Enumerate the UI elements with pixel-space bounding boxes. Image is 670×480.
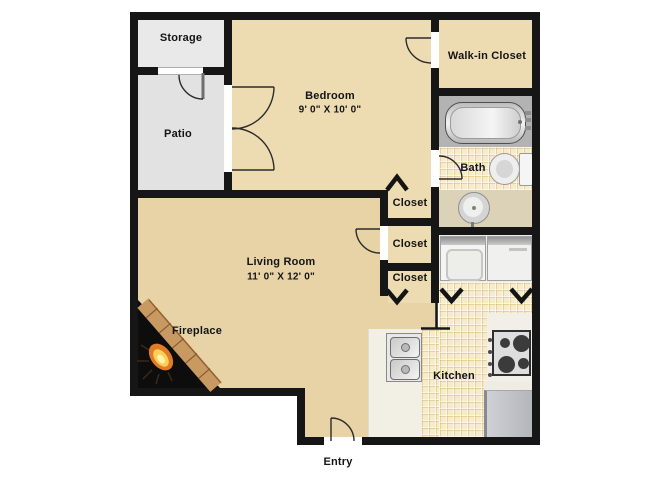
- wall-vanity-laundry: [439, 227, 540, 235]
- door-opening-closet: [380, 226, 388, 260]
- stove-knob: [488, 350, 492, 354]
- kitchen-sink-basin-bottom: [390, 359, 420, 380]
- wall-bedroom-walkin: [431, 20, 439, 32]
- bathtub-icon: [445, 102, 526, 144]
- bathtub-faucet: [525, 126, 531, 130]
- door-opening-storage: [158, 67, 203, 75]
- wall-bedroom-living: [138, 190, 388, 198]
- stove-knob: [488, 362, 492, 366]
- wall-exterior-left: [130, 12, 138, 396]
- stove-burner: [500, 338, 510, 348]
- floor-plan: Storage Patio Bedroom 9' 0" X 10' 0" Wal…: [0, 0, 670, 480]
- wall-closet-right: [431, 187, 439, 303]
- toilet-bowl: [496, 160, 513, 178]
- bath-label: Bath: [460, 162, 485, 174]
- bathtub-drain: [518, 120, 522, 124]
- stove-burner: [498, 356, 515, 373]
- washer-door: [446, 249, 483, 281]
- door-opening-entry: [324, 437, 362, 445]
- kitchen-label: Kitchen: [433, 370, 475, 382]
- patio-label: Patio: [164, 128, 192, 140]
- fireplace-label: Fireplace: [172, 325, 222, 337]
- bathtub-basin: [450, 107, 521, 139]
- toilet-tank: [519, 153, 533, 186]
- refrigerator-icon: [484, 390, 532, 437]
- wall-bedroom-bath: [431, 68, 439, 150]
- living-room-dimensions: 11' 0" X 12' 0": [247, 272, 315, 283]
- wall-walkin-bottom: [431, 88, 540, 96]
- washer-icon: [440, 236, 486, 281]
- kitchen-tile-floor-west: [421, 329, 439, 437]
- stove-burner: [518, 358, 529, 369]
- kitchen-sink-drain: [401, 365, 410, 374]
- washer-control-panel: [441, 237, 485, 245]
- door-opening-french: [224, 85, 232, 172]
- entry-label: Entry: [323, 456, 352, 468]
- dryer-control-panel: [488, 237, 531, 245]
- closet-middle-label: Closet: [393, 238, 428, 250]
- living-room-floor: [138, 198, 368, 388]
- vanity-sink-icon: [458, 192, 490, 224]
- dryer-icon: [487, 236, 532, 281]
- bedroom-label: Bedroom: [305, 90, 355, 102]
- closet-bottom-label: Closet: [393, 272, 428, 284]
- kitchen-sink-drain: [401, 343, 410, 352]
- door-opening-bath: [431, 150, 439, 187]
- door-opening-walkin: [431, 32, 439, 68]
- closet-top-label: Closet: [393, 197, 428, 209]
- toilet-icon: [489, 153, 520, 185]
- kitchen-sink-basin-top: [390, 337, 420, 358]
- stove-burner: [513, 335, 530, 352]
- kitchen-sink-icon: [386, 333, 422, 382]
- bathtub-faucet: [525, 118, 531, 122]
- walk-in-closet-label: Walk-in Closet: [448, 50, 526, 62]
- bedroom-dimensions: 9' 0" X 10' 0": [299, 105, 362, 116]
- living-room-label: Living Room: [247, 256, 316, 268]
- counter-strip: [484, 381, 532, 390]
- stove-knob: [488, 338, 492, 342]
- stove-knob: [488, 373, 492, 377]
- wall-exterior-bottom-left: [130, 388, 305, 396]
- bathtub-faucet: [525, 111, 531, 115]
- wall-exterior-top: [130, 12, 540, 20]
- dryer-vent-detail: [509, 248, 527, 251]
- vanity-sink-drain: [472, 206, 476, 210]
- storage-label: Storage: [160, 32, 202, 44]
- living-room-floor-entry-strip: [305, 388, 368, 437]
